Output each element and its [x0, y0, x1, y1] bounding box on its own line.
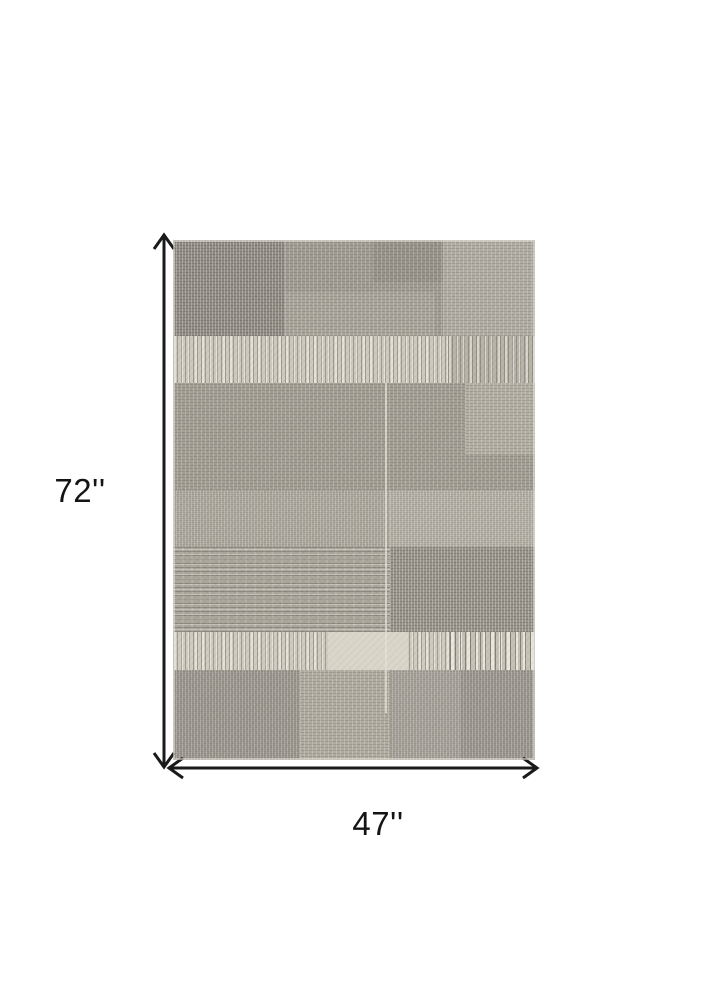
- rug-patch-streak2-right: [450, 632, 535, 670]
- rug-patch-streak2-cream: [328, 632, 408, 670]
- rug-patch-mid-right-light: [465, 383, 535, 455]
- rug-patch-streak1-right: [448, 336, 535, 383]
- rug-patch-top-mid: [285, 292, 435, 336]
- height-dimension-arrow-icon: [148, 229, 180, 773]
- rug-patch-hline-right-dark: [390, 547, 535, 632]
- height-label: 72'': [36, 473, 124, 509]
- width-dimension-arrow-icon: [161, 752, 545, 784]
- rug-patch-bottom-right-gray: [460, 670, 535, 760]
- rug-patch-bottom-left-gray: [173, 670, 300, 760]
- rug-patch-top-left-dark: [173, 240, 285, 336]
- rug-patch-top-right-light: [443, 240, 535, 336]
- rug-patch-speckle-right: [390, 490, 535, 547]
- rug-image: [173, 240, 535, 760]
- rug-vertical-seam: [385, 383, 387, 713]
- width-label: 47'': [326, 806, 430, 842]
- rug-patch-top-center: [373, 240, 443, 282]
- dimension-diagram: 72'' 47'': [0, 0, 708, 1000]
- rug-patch-bottom-mid-light: [300, 670, 390, 760]
